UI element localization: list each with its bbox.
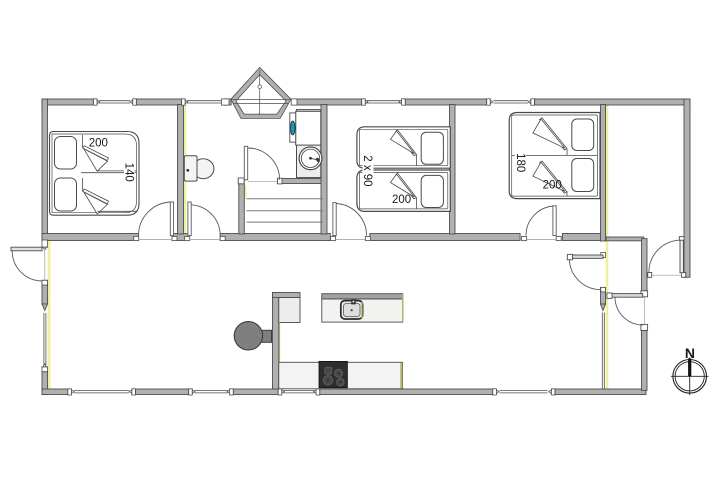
svg-text:180: 180: [514, 153, 526, 172]
svg-text:N: N: [685, 345, 695, 361]
svg-text:140: 140: [122, 163, 134, 182]
svg-text:200: 200: [543, 180, 562, 192]
svg-text:2 x 90: 2 x 90: [361, 155, 373, 186]
svg-text:200: 200: [89, 138, 108, 150]
svg-text:200: 200: [392, 194, 411, 206]
